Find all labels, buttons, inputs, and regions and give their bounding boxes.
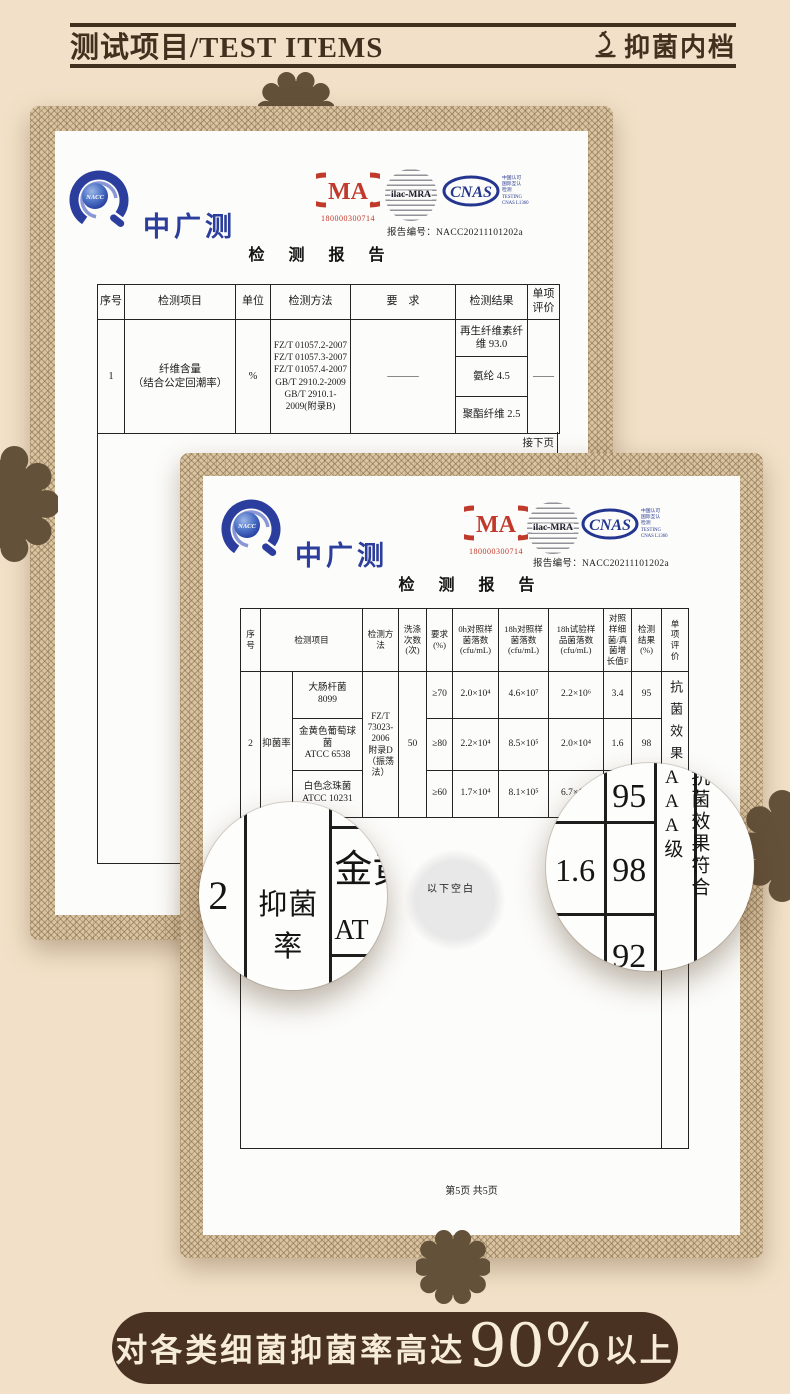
cell-method: FZ/T 73023- 2006 附录D （振荡 法） [363, 672, 399, 818]
magnified-result-3: 92 [604, 938, 654, 971]
th-requirement: 要求 (%) [427, 609, 453, 672]
mag-grid-line [546, 913, 654, 916]
lab-logo [217, 496, 287, 566]
page-title: 测试项目/TEST ITEMS [70, 24, 383, 66]
mag-grid-line [244, 802, 247, 990]
report-number-line: 报告编号：NACC20211101202a [533, 555, 669, 569]
cell-18h-control: 8.5×10⁵ [499, 719, 549, 771]
cell-result: 95 [632, 672, 662, 719]
cell-req: ≥80 [427, 719, 453, 771]
th-item: 检测项目 [125, 285, 236, 320]
mag-grid-line [329, 802, 332, 990]
ilac-label: ilac-MRA [390, 190, 432, 200]
cell-seq: 1 [98, 320, 125, 434]
cnas-icon [581, 506, 639, 542]
mag-grid-line [329, 826, 387, 829]
cell-result-1: 再生纤维素纤 维 93.0 [456, 320, 528, 357]
th-0h: 0h对照样 菌落数 (cfu/mL) [453, 609, 499, 672]
cma-icon [464, 504, 528, 544]
th-18h-sample: 18h试验样 品菌落数 (cfu/mL) [549, 609, 604, 672]
th-evaluation: 单 项 评 价 [662, 609, 689, 672]
magnified-result-2: 98 [604, 852, 654, 890]
cell-result-2: 氨纶 4.5 [456, 357, 528, 397]
cell-result-3: 聚酯纤维 2.5 [456, 397, 528, 434]
fiber-content-table: 序号 检测项目 单位 检测方法 要 求 检测结果 单项 评价 1 纤维含量 （结… [97, 284, 560, 434]
cell-item: 抑菌率 [261, 672, 293, 818]
table2-header-row: 序 号 检测项目 检测方 法 洗涤 次数 (次) 要求 (%) 0h对照样 菌落… [241, 609, 689, 672]
cell-0h: 2.0×10⁴ [453, 672, 499, 719]
flower-ornament-bottom [416, 1230, 490, 1304]
organism-row-ecoli: 2 抑菌率 大肠杆菌 8099 FZ/T 73023- 2006 附录D （振荡… [241, 672, 689, 719]
continued-note: 接下页 [523, 435, 555, 450]
mag-grid-line [546, 821, 654, 824]
report-number-label: 报告编号： [533, 559, 582, 569]
cell-wash: 50 [399, 672, 427, 818]
th-result: 检测 结果 (%) [632, 609, 662, 672]
header-tag-group: 抑菌内档 [592, 27, 736, 64]
magnified-result-1: 95 [604, 778, 654, 816]
cell-seq: 2 [241, 672, 261, 818]
banner-prefix: 对各类细菌抑菌率高达 [115, 1325, 465, 1371]
organism-row-staph: 金黄色葡萄球 菌 ATCC 6538 ≥80 2.2×10⁴ 8.5×10⁵ 2… [241, 719, 689, 771]
cell-18h-control: 4.6×10⁷ [499, 672, 549, 719]
report-title: 检 测 报 告 [203, 571, 740, 595]
microscope-icon [592, 30, 619, 60]
th-method: 检测方法 [271, 285, 351, 320]
ilac-mra-icon: ilac-MRA [385, 169, 437, 221]
th-result: 检测结果 [456, 285, 528, 320]
lab-name: 中广测 [295, 534, 388, 573]
report-number-label: 报告编号： [387, 228, 436, 238]
cell-organism: 大肠杆菌 8099 [293, 672, 363, 719]
cell-requirement: ——— [351, 320, 456, 434]
cnas-side-text: 中国认可 国际互认 检测 TESTING CNAS L1360 [641, 509, 668, 542]
cell-req: ≥60 [427, 771, 453, 818]
magnifier-left: 2 抑菌率 金黄 AT [199, 802, 387, 990]
banner-suffix: 以上 [605, 1325, 675, 1371]
cma-number: 180000300714 [313, 214, 383, 223]
claim-banner: 对各类细菌抑菌率高达 90% 以上 [112, 1312, 678, 1384]
report-number-line: 报告编号：NACC20211101202a [387, 224, 523, 238]
header-tag: 抑菌内档 [624, 27, 736, 64]
th-seq: 序号 [98, 285, 125, 320]
mag-grid-line [654, 763, 657, 971]
cell-req: ≥70 [427, 672, 453, 719]
cnas-side-text: 中国认可 国际互认 检测 TESTING CNAS L1360 [502, 176, 529, 209]
report-title: 检 测 报 告 [55, 241, 588, 265]
cell-0h: 1.7×10⁴ [453, 771, 499, 818]
cell-18h-sample: 2.0×10⁴ [549, 719, 604, 771]
lab-name: 中广测 [143, 205, 236, 244]
th-18h-control: 18h对照样 菌落数 (cfu/mL) [499, 609, 549, 672]
cma-mark: 180000300714 [461, 504, 531, 556]
magnified-item: 抑菌率 [248, 881, 329, 965]
magnified-evaluation: 抗菌效果符合AAA级 [658, 767, 712, 967]
th-seq: 序 号 [241, 609, 261, 672]
magnifier-right: 95 1.6 98 92 抗菌效果符合AAA级 [546, 763, 754, 971]
cell-18h-control: 8.1×10⁵ [499, 771, 549, 818]
ilac-label: ilac-MRA [532, 523, 574, 533]
report-number-value: NACC20211101202a [582, 559, 669, 569]
cma-mark: 180000300714 [313, 171, 383, 223]
lab-logo [65, 167, 135, 237]
page-header: 测试项目/TEST ITEMS 抑菌内档 [70, 28, 736, 62]
magnified-partial-top: 金黄 [334, 838, 387, 893]
magnified-seq: 2 [208, 872, 228, 919]
th-wash: 洗涤 次数 (次) [399, 609, 427, 672]
mag-grid-line [329, 954, 387, 957]
cnas-icon [442, 173, 500, 209]
cell-unit: % [236, 320, 271, 434]
report-number-value: NACC20211101202a [436, 228, 523, 238]
header-rule-bottom [70, 64, 736, 68]
cma-icon [316, 171, 380, 211]
th-item: 检测项目 [261, 609, 363, 672]
cell-method: FZ/T 01057.2-2007 FZ/T 01057.3-2007 FZ/T… [271, 320, 351, 434]
cell-growth-f: 1.6 [604, 719, 632, 771]
cnas-mark: 中国认可 国际互认 检测 TESTING CNAS L1360 [581, 506, 668, 542]
th-evaluation: 单项 评价 [528, 285, 560, 320]
table1-header-row: 序号 检测项目 单位 检测方法 要 求 检测结果 单项 评价 [98, 285, 560, 320]
cell-0h: 2.2×10⁴ [453, 719, 499, 771]
cell-18h-sample: 2.2×10⁶ [549, 672, 604, 719]
magnified-growth-f: 1.6 [546, 852, 604, 889]
th-method: 检测方 法 [363, 609, 399, 672]
table1-row-1: 1 纤维含量 （结合公定回潮率） % FZ/T 01057.2-2007 FZ/… [98, 320, 560, 357]
ilac-mra-icon: ilac-MRA [527, 502, 579, 554]
magnified-partial-bottom: AT [334, 915, 368, 947]
flower-ornament-left [0, 446, 58, 562]
cnas-mark: 中国认可 国际互认 检测 TESTING CNAS L1360 [442, 173, 529, 209]
th-growth-f: 对照 样细 菌/真 菌增 长值F [604, 609, 632, 672]
th-unit: 单位 [236, 285, 271, 320]
cell-item: 纤维含量 （结合公定回潮率） [125, 320, 236, 434]
cma-number: 180000300714 [461, 547, 531, 556]
banner-highlight: 90% [468, 1311, 601, 1381]
page: 测试项目/TEST ITEMS 抑菌内档 中广测 180000300714 il… [0, 0, 790, 1394]
cell-evaluation: —— [528, 320, 560, 434]
page-footer: 第5页 共5页 [203, 1182, 740, 1197]
th-requirement: 要 求 [351, 285, 456, 320]
cell-growth-f: 3.4 [604, 672, 632, 719]
cell-organism: 金黄色葡萄球 菌 ATCC 6538 [293, 719, 363, 771]
